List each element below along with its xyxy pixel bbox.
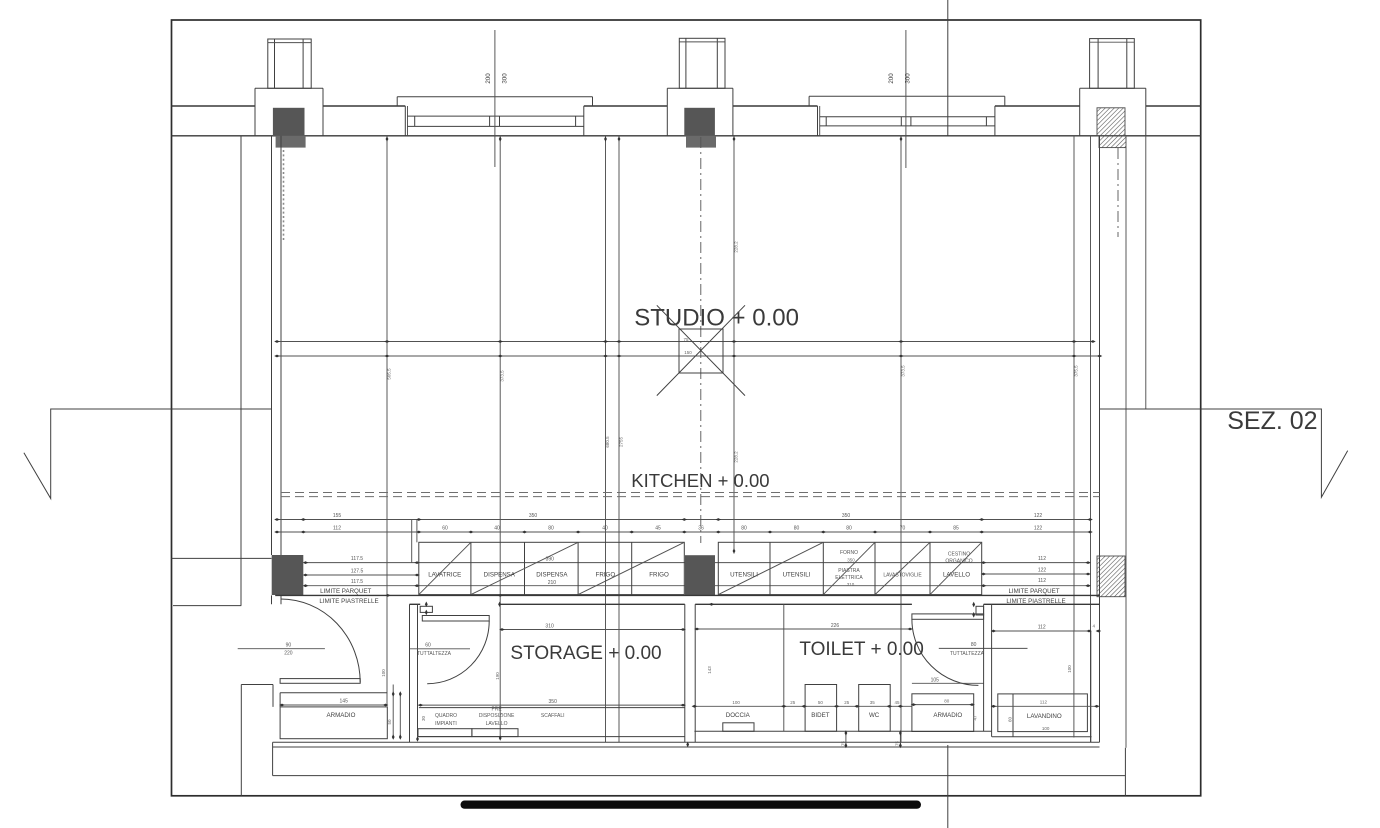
svg-text:LAVASTOVIGLIE: LAVASTOVIGLIE <box>883 572 922 578</box>
svg-text:210: 210 <box>548 580 557 586</box>
svg-text:UTENSILI: UTENSILI <box>783 571 811 578</box>
svg-text:155: 155 <box>333 513 342 519</box>
svg-text:122: 122 <box>1034 513 1043 519</box>
svg-text:35: 35 <box>870 700 876 705</box>
svg-text:680.5: 680.5 <box>605 436 610 448</box>
svg-text:LAVELLO: LAVELLO <box>943 571 970 578</box>
svg-text:75: 75 <box>895 741 900 747</box>
svg-text:45: 45 <box>894 700 900 705</box>
svg-text:DISPOSIZIONE: DISPOSIZIONE <box>479 713 515 719</box>
svg-text:190: 190 <box>495 672 500 680</box>
svg-text:TUTTALTEZZA: TUTTALTEZZA <box>417 651 452 657</box>
svg-text:85: 85 <box>953 526 959 532</box>
svg-text:TOILET + 0.00: TOILET + 0.00 <box>799 639 923 660</box>
svg-text:200: 200 <box>888 73 895 84</box>
svg-text:350: 350 <box>842 513 851 519</box>
svg-text:LAVELLO: LAVELLO <box>486 721 508 727</box>
svg-text:DISPENSA: DISPENSA <box>536 571 568 578</box>
svg-text:STORAGE + 0.00: STORAGE + 0.00 <box>510 643 661 664</box>
svg-text:150: 150 <box>684 350 692 355</box>
svg-text:LAVANDINO: LAVANDINO <box>1027 713 1062 720</box>
svg-text:ARMADIO: ARMADIO <box>327 712 356 719</box>
svg-text:UTENSILI: UTENSILI <box>730 571 758 578</box>
svg-text:200: 200 <box>485 73 492 84</box>
svg-text:117.5: 117.5 <box>351 579 363 585</box>
svg-text:47: 47 <box>973 715 978 721</box>
svg-text:350: 350 <box>847 558 855 563</box>
svg-text:310: 310 <box>545 623 554 629</box>
svg-text:WC: WC <box>869 712 880 719</box>
svg-text:TUTTALTEZZA: TUTTALTEZZA <box>950 651 985 657</box>
svg-text:FRIGO: FRIGO <box>649 571 669 578</box>
svg-text:100: 100 <box>1067 665 1072 673</box>
svg-text:100: 100 <box>1042 726 1050 731</box>
svg-text:112: 112 <box>333 526 341 532</box>
svg-text:PIASTRA: PIASTRA <box>838 568 860 574</box>
svg-text:DOCCIA: DOCCIA <box>726 712 751 719</box>
svg-text:QUADRO: QUADRO <box>435 713 457 719</box>
svg-text:IMPIANTI: IMPIANTI <box>435 721 457 727</box>
svg-text:50: 50 <box>818 700 824 705</box>
svg-text:60: 60 <box>425 642 431 648</box>
svg-text:390: 390 <box>546 557 555 563</box>
svg-text:228.2: 228.2 <box>733 451 738 463</box>
svg-text:50: 50 <box>387 719 392 725</box>
svg-text:LIMITE PIASTRELLE: LIMITE PIASTRELLE <box>319 598 378 605</box>
svg-text:25: 25 <box>790 700 796 705</box>
svg-text:127.5: 127.5 <box>351 569 364 575</box>
svg-text:100: 100 <box>381 669 386 677</box>
svg-text:LIMITE PARQUET: LIMITE PARQUET <box>320 588 371 595</box>
svg-text:112: 112 <box>1038 578 1046 584</box>
svg-text:60: 60 <box>1008 717 1013 723</box>
svg-text:300: 300 <box>502 73 509 84</box>
svg-text:40: 40 <box>602 526 608 532</box>
svg-text:KITCHEN + 0.00: KITCHEN + 0.00 <box>631 470 769 491</box>
svg-text:70: 70 <box>900 526 906 532</box>
svg-text:373.5: 373.5 <box>901 365 906 377</box>
svg-text:80: 80 <box>971 642 977 648</box>
svg-text:PRE: PRE <box>491 706 502 712</box>
svg-text:122: 122 <box>1034 526 1043 532</box>
svg-text:350: 350 <box>549 699 558 705</box>
svg-text:112: 112 <box>1040 700 1048 705</box>
svg-text:505.5: 505.5 <box>387 368 392 380</box>
svg-text:80: 80 <box>794 526 800 532</box>
svg-text:373.5: 373.5 <box>500 370 505 382</box>
svg-text:BIDET: BIDET <box>811 712 829 719</box>
svg-text:80: 80 <box>741 526 747 532</box>
svg-text:310: 310 <box>847 582 855 587</box>
svg-text:60: 60 <box>442 526 448 532</box>
svg-text:SEZ. 02: SEZ. 02 <box>1227 407 1317 435</box>
svg-text:LAVATRICE: LAVATRICE <box>428 571 461 578</box>
svg-text:80: 80 <box>548 526 554 532</box>
svg-text:117.5: 117.5 <box>351 556 363 562</box>
svg-text:STUDIO + 0.00: STUDIO + 0.00 <box>634 305 799 332</box>
svg-text:ELETTRICA: ELETTRICA <box>835 575 863 581</box>
svg-text:FORNO: FORNO <box>840 550 858 556</box>
svg-text:25: 25 <box>844 700 850 705</box>
svg-text:226: 226 <box>831 623 840 629</box>
svg-text:ARMADIO: ARMADIO <box>933 712 962 719</box>
svg-text:100: 100 <box>732 700 740 705</box>
svg-text:112: 112 <box>1038 624 1046 630</box>
svg-text:300: 300 <box>905 73 912 84</box>
svg-text:143: 143 <box>707 666 712 674</box>
svg-text:LIMITE PARQUET: LIMITE PARQUET <box>1008 588 1059 595</box>
svg-text:145: 145 <box>340 698 349 704</box>
svg-text:30: 30 <box>421 716 426 722</box>
svg-text:2755: 2755 <box>619 436 624 447</box>
svg-text:80: 80 <box>846 526 852 532</box>
svg-text:FRIGO: FRIGO <box>596 571 616 578</box>
svg-text:112: 112 <box>1038 556 1046 562</box>
svg-text:105: 105 <box>931 677 940 683</box>
svg-text:90: 90 <box>286 643 292 649</box>
svg-text:80: 80 <box>944 698 950 703</box>
svg-text:40: 40 <box>494 526 500 532</box>
svg-text:75: 75 <box>683 337 689 342</box>
svg-text:220: 220 <box>284 651 293 657</box>
svg-text:122: 122 <box>1038 568 1047 574</box>
svg-text:36: 36 <box>698 526 704 532</box>
svg-text:350: 350 <box>529 513 538 519</box>
svg-text:CESTINO: CESTINO <box>948 552 970 558</box>
svg-text:SCAFFALI: SCAFFALI <box>541 713 565 719</box>
svg-text:DISPENSA: DISPENSA <box>484 571 516 578</box>
svg-text:45: 45 <box>655 526 661 532</box>
svg-text:375.5: 375.5 <box>1074 365 1079 377</box>
svg-text:228.2: 228.2 <box>733 241 738 253</box>
svg-text:ORGANICO: ORGANICO <box>945 559 972 565</box>
